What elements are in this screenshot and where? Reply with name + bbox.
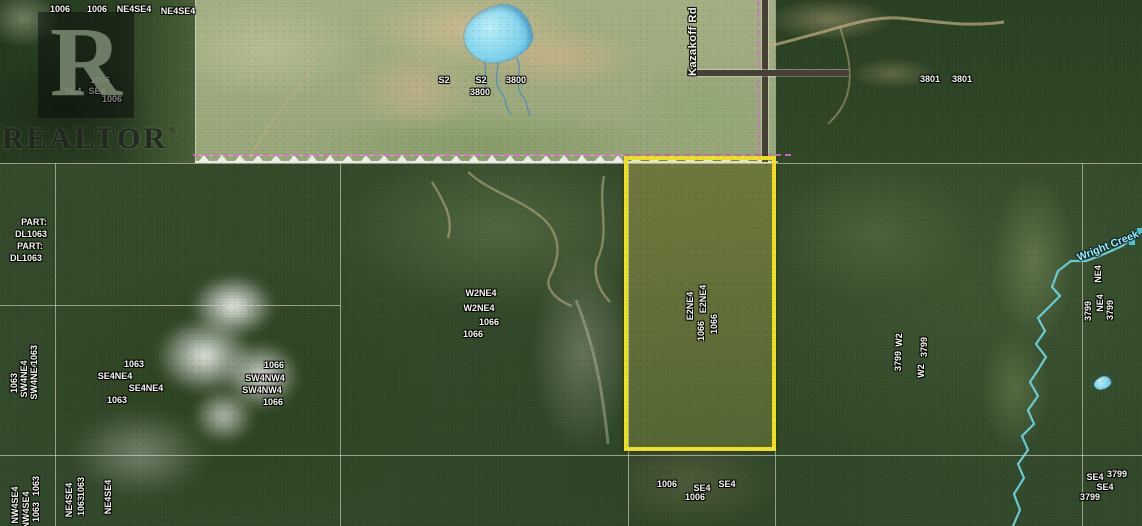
small-pond: [1093, 375, 1113, 392]
realtor-watermark: REALTOR®: [2, 122, 176, 156]
logging-trail: [432, 182, 450, 238]
parcel-label: 1063: [31, 476, 41, 496]
parcel-label: 1006: [685, 492, 705, 502]
parcel-label: SW4NE4: [29, 362, 39, 399]
cloud: [138, 246, 328, 446]
pond: [460, 1, 537, 68]
creek-label: Wright Creek: [1076, 228, 1141, 264]
parcel-label: 3799: [919, 337, 929, 357]
parcel-edge-trail: [576, 300, 608, 444]
parcel-label: W2: [894, 333, 904, 347]
parcel-label: 3799: [1105, 300, 1115, 320]
parcel-label: W2NE4: [465, 288, 496, 298]
parcel-label: W2NE4: [463, 303, 494, 313]
parcel-label: NE4: [1095, 294, 1105, 312]
parcel-label: 1066: [479, 317, 499, 327]
parcel-label: 1006: [657, 479, 677, 489]
parcel-label: NE4: [1093, 265, 1103, 283]
terrain-green-mid-east: [780, 168, 970, 298]
creek-marker: [1129, 239, 1135, 245]
registered-symbol: ®: [168, 125, 176, 137]
parcel-gridline: [0, 163, 1142, 164]
parcel-label: 1066: [264, 360, 284, 370]
parcel-label: 1066: [463, 329, 483, 339]
parcel-label: NW4SE4: [21, 491, 31, 526]
parcel-label: 3801: [920, 74, 940, 84]
realtor-logo-letter: R: [50, 12, 122, 112]
parcel-label: 1063: [29, 345, 39, 365]
parcel-label: SE4: [1096, 482, 1113, 492]
parcel-label: 3800: [506, 75, 526, 85]
parcel-gridline: [340, 163, 341, 526]
terrain-forest-topright: [775, 0, 1142, 163]
logging-trail: [468, 172, 572, 306]
cloud-wisp: [70, 408, 210, 498]
photo-grain: [0, 0, 1142, 526]
terrain-cutblock: [340, 163, 628, 308]
parcel-label: 3801: [952, 74, 972, 84]
terrain-clearing-south: [628, 452, 778, 526]
drainage-line: [496, 56, 512, 115]
parcel-label: SW4NW4: [242, 385, 282, 395]
parcel-label: 1063: [9, 373, 19, 393]
survey-boundary-vertical: [757, 0, 759, 158]
parcel-label: 3799: [1080, 492, 1100, 502]
parcel-gridline: [0, 305, 340, 306]
parcel-label: 1063: [124, 359, 144, 369]
parcel-label: SE4NE4: [98, 371, 133, 381]
parcel-label: NE4SE4: [161, 6, 196, 16]
kazakoff-road: [762, 0, 768, 162]
parcel-label: PART:: [21, 217, 47, 227]
realtor-logo-icon: R: [38, 12, 134, 118]
parcel-label: 3799: [893, 351, 903, 371]
parcel-label: 1063: [31, 502, 41, 522]
parcel-gridline: [55, 163, 56, 526]
aerial-parcel-map: 10061006NE4SE4NE4SE41006SE4SE41006S2S238…: [0, 0, 1142, 526]
dirt-trail: [770, 18, 1004, 46]
parcel-label: SE4: [1086, 472, 1103, 482]
parcel-label: SE4: [718, 479, 735, 489]
parcel-label: 1063: [76, 477, 86, 497]
parcel-label: NE4SE4: [64, 483, 74, 518]
parcel-label: 3799: [1107, 469, 1127, 479]
parcel-label: 1063: [76, 496, 86, 516]
parcel-label: PART:: [17, 241, 43, 251]
parcel-label: S2: [475, 75, 486, 85]
parcel-gridline: [0, 455, 1142, 456]
drainage-line: [517, 58, 531, 116]
highlighted-parcel-boundary: [624, 156, 776, 451]
parcel-label: 1063: [107, 395, 127, 405]
parcel-label: 3800: [470, 87, 490, 97]
drainage-line: [484, 60, 488, 94]
parcel-gridline: [195, 0, 196, 163]
terrain-dead-pine: [532, 252, 632, 452]
water-and-trails-layer: [0, 0, 1142, 526]
parcel-label: SW4NW4: [245, 373, 285, 383]
parcel-label: DL1063: [10, 253, 42, 263]
parcel-label: SE4NE4: [129, 383, 164, 393]
field-trail: [250, 38, 322, 158]
parcel-label: DL1063: [15, 229, 47, 239]
creek-marker: [1137, 228, 1142, 233]
parcel-label: NW4SE4: [10, 486, 20, 523]
realtor-brand-text: REALTOR: [2, 122, 168, 155]
parcel-label: SE4: [693, 483, 710, 493]
parcel-label: NE4SE4: [103, 480, 113, 515]
logging-trail: [596, 176, 610, 302]
parcel-label: 1066: [263, 397, 283, 407]
parcel-label: 3799: [1083, 301, 1093, 321]
terrain-meadow-east: [960, 175, 1082, 460]
road-label: Kazakoff Rd: [687, 70, 849, 76]
wright-creek-line: [1013, 231, 1142, 526]
parcel-label: SW4NE4: [19, 360, 29, 397]
parcel-label: S2: [438, 75, 449, 85]
parcel-label: W2: [916, 364, 926, 378]
dirt-trail: [828, 27, 850, 124]
parcel-gridline: [1082, 163, 1083, 526]
